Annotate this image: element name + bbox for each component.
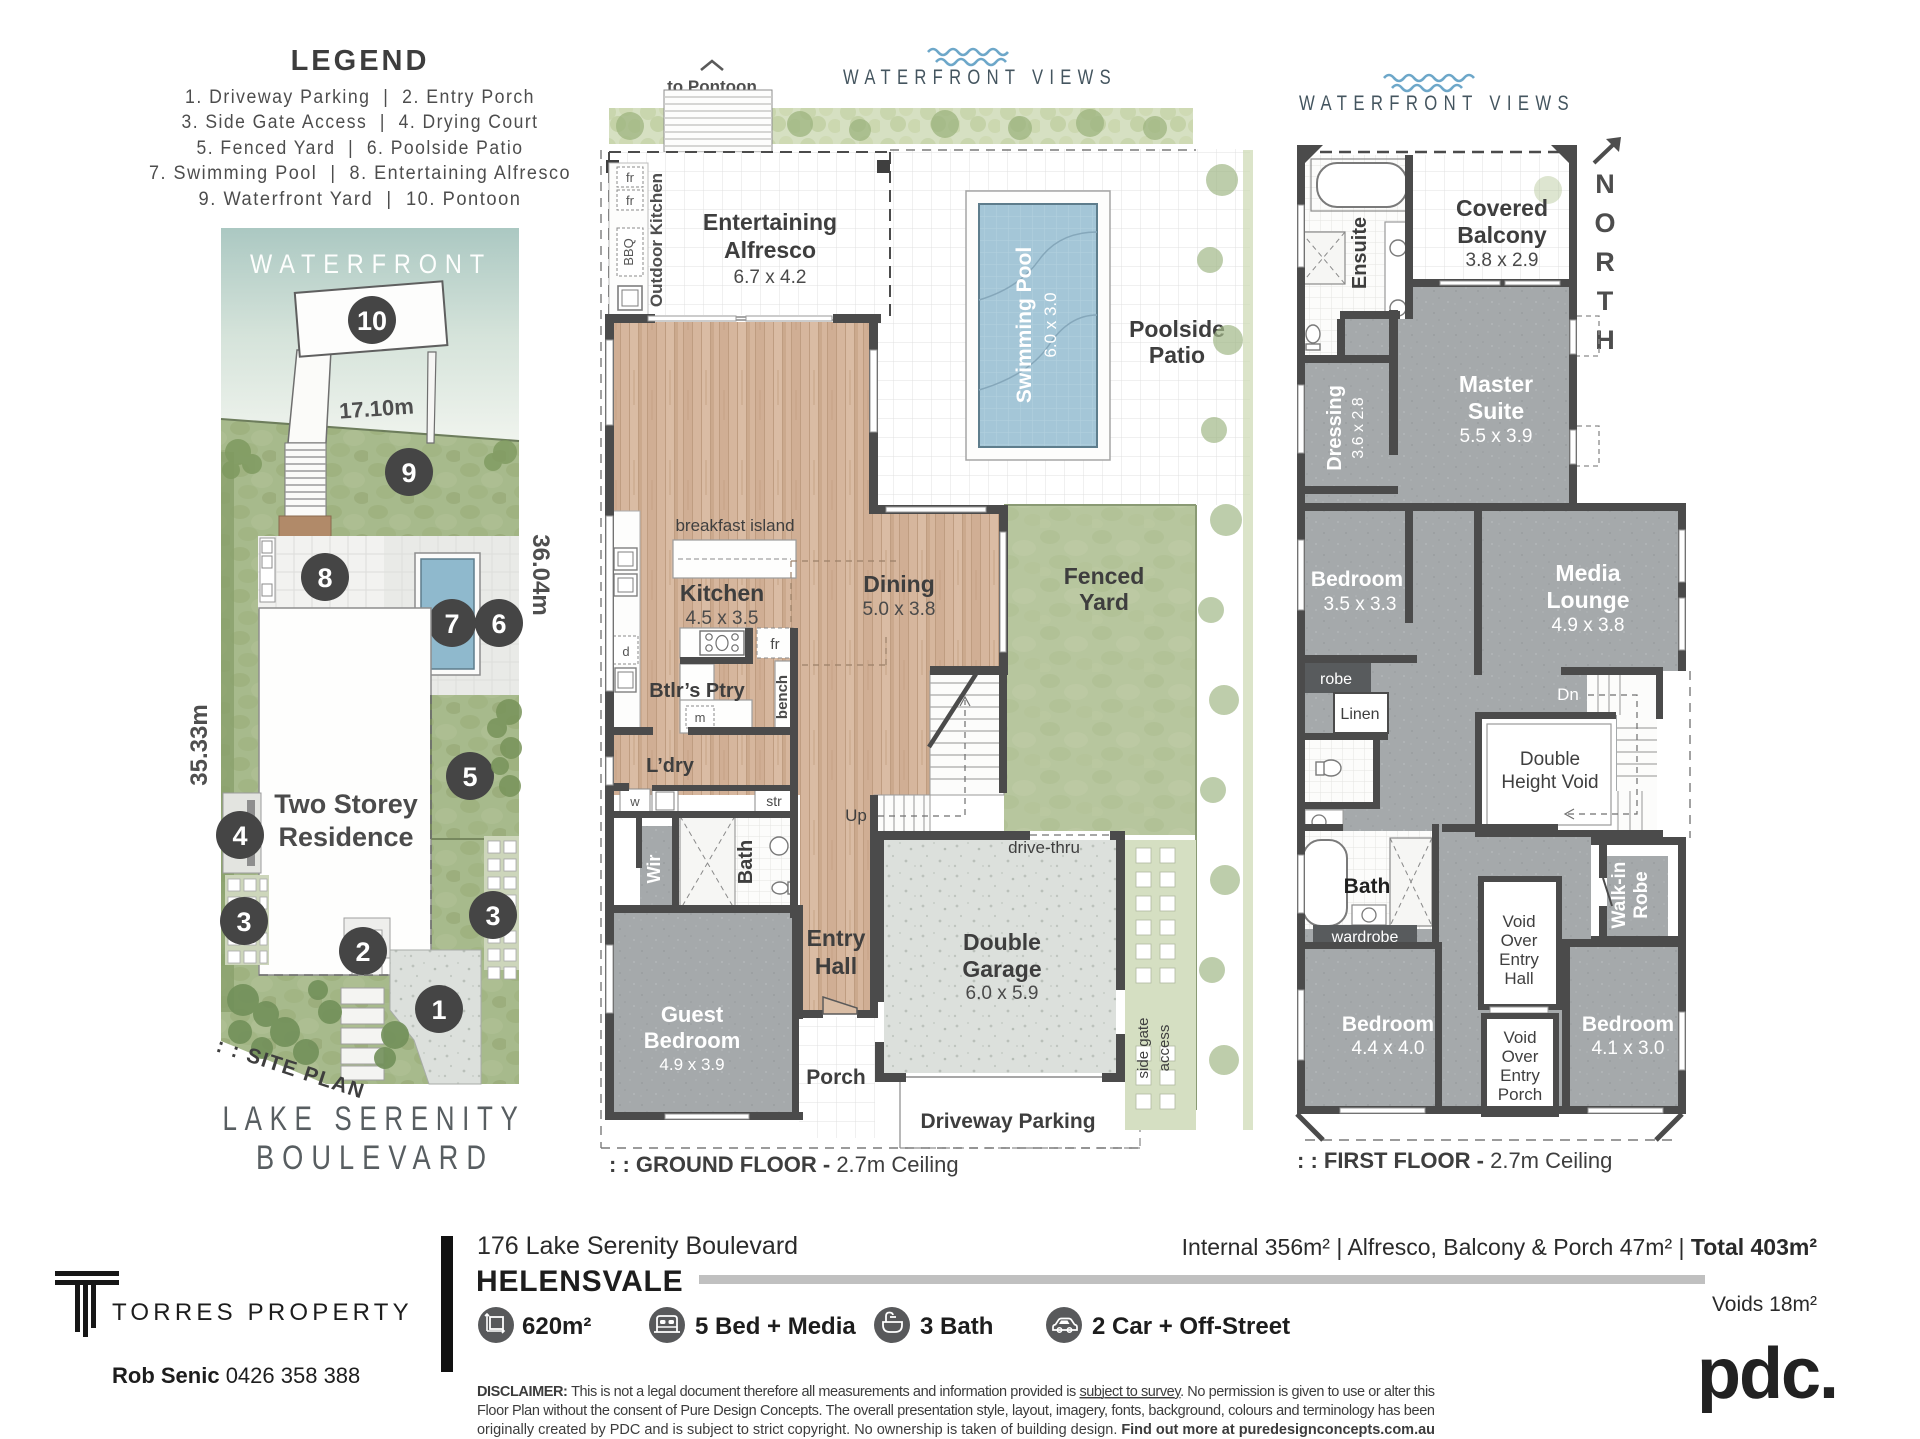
svg-text:Fenced: Fenced [1064, 563, 1145, 589]
svg-text:1: 1 [431, 995, 446, 1025]
svg-text:4.4 x 4.0: 4.4 x 4.0 [1352, 1038, 1425, 1059]
svg-text:35.33m: 35.33m [186, 704, 213, 785]
svg-text:5.5 x 3.9: 5.5 x 3.9 [1460, 426, 1533, 447]
svg-text:m: m [695, 710, 706, 725]
svg-text:Dressing: Dressing [1324, 385, 1346, 471]
svg-text:4: 4 [232, 821, 247, 851]
svg-text:6.7 x 4.2: 6.7 x 4.2 [734, 267, 807, 288]
svg-text:Entry: Entry [1499, 950, 1539, 969]
svg-text:Kitchen: Kitchen [680, 580, 764, 606]
svg-text:pdc.: pdc. [1697, 1334, 1837, 1414]
svg-text:5 Bed + Media: 5 Bed + Media [695, 1313, 856, 1340]
svg-text:4.5 x 3.5: 4.5 x 3.5 [686, 608, 759, 629]
svg-text:side gate: side gate [1135, 1018, 1152, 1079]
svg-text:Linen: Linen [1340, 706, 1379, 723]
svg-text:Porch: Porch [1498, 1085, 1542, 1104]
svg-text:Bath: Bath [735, 840, 757, 884]
svg-text:4.9 x 3.9: 4.9 x 3.9 [659, 1055, 724, 1074]
svg-text:LAKE SERENITY: LAKE SERENITY [223, 1100, 526, 1138]
svg-text:Btlr’s Ptry: Btlr’s Ptry [649, 680, 745, 702]
svg-text:4.1 x 3.0: 4.1 x 3.0 [1592, 1038, 1665, 1059]
svg-text:O: O [1594, 208, 1615, 238]
svg-text:Garage: Garage [962, 956, 1041, 982]
svg-text:Master: Master [1459, 371, 1533, 397]
svg-text:3.6 x 2.8: 3.6 x 2.8 [1350, 397, 1367, 458]
svg-text:Over: Over [1502, 1047, 1539, 1066]
svg-text:Lounge: Lounge [1546, 587, 1629, 613]
svg-text:BOULEVARD: BOULEVARD [256, 1139, 494, 1177]
svg-text:Ensuite: Ensuite [1349, 217, 1371, 289]
svg-text:Hall: Hall [1504, 969, 1533, 988]
svg-text:Alfresco: Alfresco [724, 237, 816, 263]
svg-text:TORRES PROPERTY: TORRES PROPERTY [112, 1299, 413, 1326]
svg-text:drive-thru: drive-thru [1008, 838, 1080, 857]
svg-text:N: N [1595, 169, 1615, 199]
svg-text:36.04m: 36.04m [527, 534, 554, 615]
svg-text:Wir: Wir [644, 855, 664, 884]
svg-text:L’dry: L’dry [646, 755, 695, 777]
svg-text:Guest: Guest [661, 1002, 724, 1027]
svg-text:Double: Double [1520, 749, 1580, 770]
svg-text:3 Bath: 3 Bath [920, 1313, 993, 1340]
svg-text:Dining: Dining [863, 571, 935, 597]
svg-text:Residence: Residence [278, 822, 413, 852]
svg-text:Porch: Porch [806, 1066, 866, 1089]
svg-text:Bath: Bath [1344, 875, 1391, 898]
svg-text:2: 2 [355, 937, 370, 967]
svg-text:access: access [1156, 1025, 1173, 1072]
svg-text:DISCLAIMER: This is not a lega: DISCLAIMER: This is not a legal document… [477, 1384, 1435, 1400]
svg-text:Floor Plan without the consent: Floor Plan without the consent of Pure D… [477, 1403, 1435, 1419]
svg-text:2 Car + Off-Street: 2 Car + Off-Street [1092, 1313, 1290, 1340]
svg-text:Internal 356m² | Alfresco, B: Internal 356m² | Alfresco, Balcony & Por… [1182, 1234, 1818, 1260]
svg-text:Dn: Dn [1557, 685, 1579, 704]
svg-text:: : FIRST FLOOR - 2.7m Ceiling: : : FIRST FLOOR - 2.7m Ceiling [1297, 1148, 1612, 1173]
svg-text:6: 6 [491, 609, 506, 639]
svg-text:Suite: Suite [1468, 398, 1524, 424]
svg-text:Outdoor Kitchen: Outdoor Kitchen [647, 173, 666, 307]
svg-text:BBQ: BBQ [621, 238, 636, 265]
svg-text:Walk-in: Walk-in [1609, 862, 1630, 929]
svg-text:Robe: Robe [1631, 871, 1652, 919]
svg-text:Bedroom: Bedroom [1311, 568, 1403, 591]
svg-text:robe: robe [1320, 671, 1352, 688]
svg-text:Void: Void [1503, 1028, 1536, 1047]
svg-text:3.5 x 3.3: 3.5 x 3.3 [1324, 594, 1397, 615]
svg-text:breakfast island: breakfast island [675, 516, 794, 535]
svg-text:4.9 x 3.8: 4.9 x 3.8 [1552, 615, 1625, 636]
svg-text:fr: fr [770, 636, 779, 653]
svg-text:9. Waterfront Yard | 10. Pon: 9. Waterfront Yard | 10. Pontoon [199, 189, 522, 210]
svg-text:Two Storey: Two Storey [274, 789, 418, 819]
svg-text:Hall: Hall [815, 953, 857, 979]
svg-text:Bedroom: Bedroom [1582, 1013, 1674, 1036]
svg-text:Media: Media [1555, 560, 1620, 586]
svg-text:3.8 x 2.9: 3.8 x 2.9 [1466, 250, 1539, 271]
svg-text:Void: Void [1502, 912, 1535, 931]
svg-text:Rob Senic 0426 358 388: Rob Senic 0426 358 388 [112, 1363, 360, 1388]
svg-text:fr: fr [626, 193, 635, 208]
svg-text:HELENSVALE: HELENSVALE [476, 1265, 683, 1298]
svg-text:Entertaining: Entertaining [703, 209, 837, 235]
svg-text:WATERFRONT: WATERFRONT [250, 249, 492, 279]
svg-text:176 Lake Serenity Boulevard: 176 Lake Serenity Boulevard [477, 1232, 798, 1260]
svg-text:bench: bench [774, 675, 791, 719]
svg-text:: : GROUND FLOOR - 2.7m Ceilin: : : GROUND FLOOR - 2.7m Ceiling [609, 1152, 959, 1177]
svg-text:fr: fr [626, 170, 635, 185]
svg-text:Poolside: Poolside [1129, 316, 1225, 342]
svg-text:Voids 18m²: Voids 18m² [1712, 1293, 1817, 1316]
svg-text:7. Swimming Pool | 8. Entert: 7. Swimming Pool | 8. Entertaining Alfre… [149, 163, 571, 184]
svg-text:6.0 x 5.9: 6.0 x 5.9 [966, 983, 1039, 1004]
svg-text:5. Fenced Yard | 6. Poolside: 5. Fenced Yard | 6. Poolside Patio [197, 138, 524, 159]
svg-text:9: 9 [401, 458, 416, 488]
svg-text:H: H [1595, 325, 1615, 355]
svg-text:w: w [629, 794, 640, 809]
svg-text:8: 8 [317, 563, 332, 593]
svg-text:WATERFRONT VIEWS: WATERFRONT VIEWS [1299, 92, 1575, 115]
svg-text:Covered: Covered [1456, 195, 1548, 221]
svg-text:Patio: Patio [1149, 342, 1205, 368]
svg-text:Entry: Entry [1500, 1066, 1540, 1085]
svg-text:17.10m: 17.10m [338, 393, 414, 423]
svg-text:1. Driveway Parking | 2. Ent: 1. Driveway Parking | 2. Entry Porch [185, 87, 535, 108]
svg-text:3: 3 [485, 901, 500, 931]
svg-text:Swimming Pool: Swimming Pool [1013, 247, 1036, 403]
svg-text:3. Side Gate Access | 4. Dry: 3. Side Gate Access | 4. Drying Court [182, 112, 539, 133]
svg-text:10: 10 [357, 306, 387, 336]
svg-text:Up: Up [845, 806, 867, 825]
svg-text:5: 5 [462, 762, 477, 792]
svg-text:T: T [1597, 286, 1614, 316]
svg-text:7: 7 [444, 609, 459, 639]
svg-text:str: str [766, 793, 782, 809]
svg-text:LEGEND: LEGEND [291, 45, 430, 77]
svg-text:Over: Over [1501, 931, 1538, 950]
svg-text:5.0 x 3.8: 5.0 x 3.8 [863, 599, 936, 620]
svg-text:620m²: 620m² [522, 1313, 591, 1340]
svg-text:R: R [1595, 247, 1615, 277]
svg-text:Balcony: Balcony [1457, 222, 1547, 248]
svg-text:3: 3 [236, 907, 251, 937]
svg-text:Bedroom: Bedroom [1342, 1013, 1434, 1036]
svg-text:Bedroom: Bedroom [644, 1028, 741, 1053]
svg-text:Double: Double [963, 929, 1041, 955]
svg-text:WATERFRONT VIEWS: WATERFRONT VIEWS [843, 66, 1117, 89]
svg-text:Entry: Entry [807, 925, 866, 951]
svg-text:Height Void: Height Void [1501, 772, 1598, 793]
svg-text:originally created by PDC and: originally created by PDC and is subject… [477, 1422, 1435, 1438]
svg-text:d: d [622, 644, 629, 659]
svg-text:Driveway Parking: Driveway Parking [920, 1110, 1095, 1133]
svg-text:6.0 x 3.0: 6.0 x 3.0 [1041, 292, 1060, 357]
svg-text:Yard: Yard [1079, 589, 1129, 615]
